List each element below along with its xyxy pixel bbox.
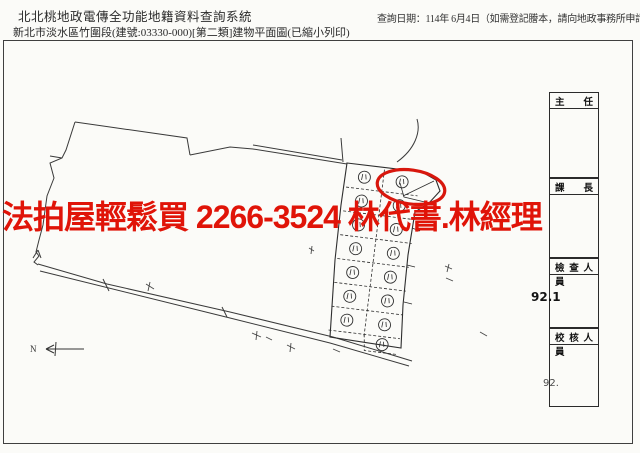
signature-box-label: 課 長	[550, 179, 598, 195]
watermark-ad-text: 法拍屋輕鬆買 2266-3524 林代書.林經理	[2, 197, 542, 237]
handwritten-number-top: 92.1	[531, 290, 561, 304]
signature-box-director: 主 任	[549, 92, 599, 178]
map-text-squiggles	[146, 246, 487, 352]
scanned-cadastral-document: 北北桃地政電傳全功能地籍資料查詢系統 新北市淡水區竹圍段(建號:03330-00…	[0, 0, 640, 453]
building-outline	[330, 163, 440, 348]
signature-box-label: 主 任	[550, 93, 598, 109]
north-arrow: N	[30, 342, 84, 356]
parcel-boundary-lines	[33, 119, 418, 265]
building-unit-grid	[327, 165, 421, 354]
road-lines	[38, 264, 412, 366]
signature-box-section-chief: 課 長	[549, 178, 599, 258]
signature-box-label: 檢 查 人 員	[550, 259, 598, 275]
signature-box-reviewer: 校 核 人 員	[549, 328, 599, 407]
handwritten-number-bottom: 92.	[543, 378, 559, 389]
north-label: N	[30, 344, 37, 354]
signature-box-label: 校 核 人 員	[550, 329, 598, 345]
